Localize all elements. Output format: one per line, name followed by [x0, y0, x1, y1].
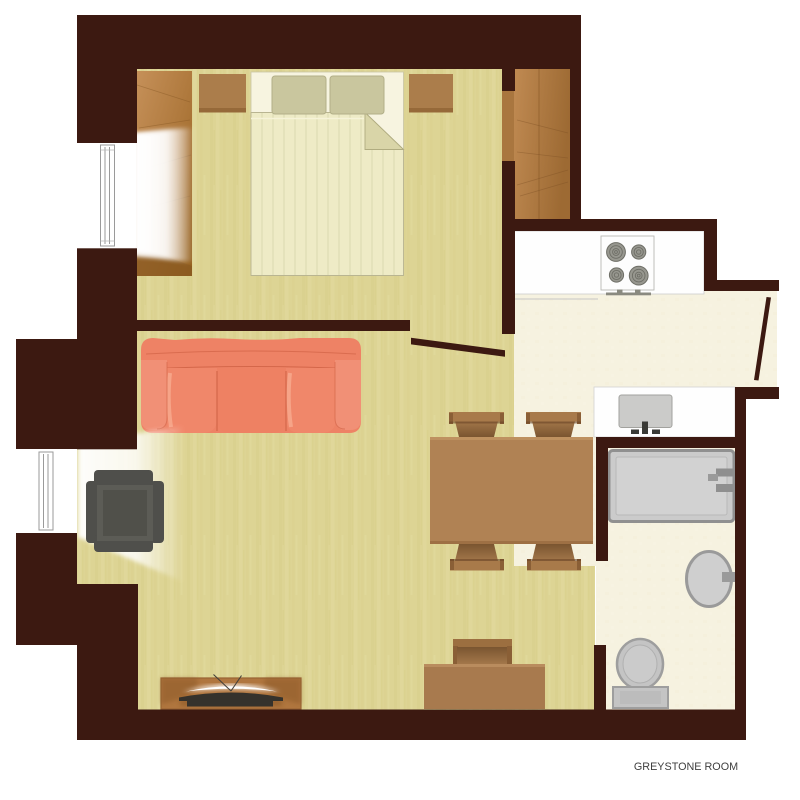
- svg-text:GREYSTONE ROOM: GREYSTONE ROOM: [634, 761, 738, 773]
